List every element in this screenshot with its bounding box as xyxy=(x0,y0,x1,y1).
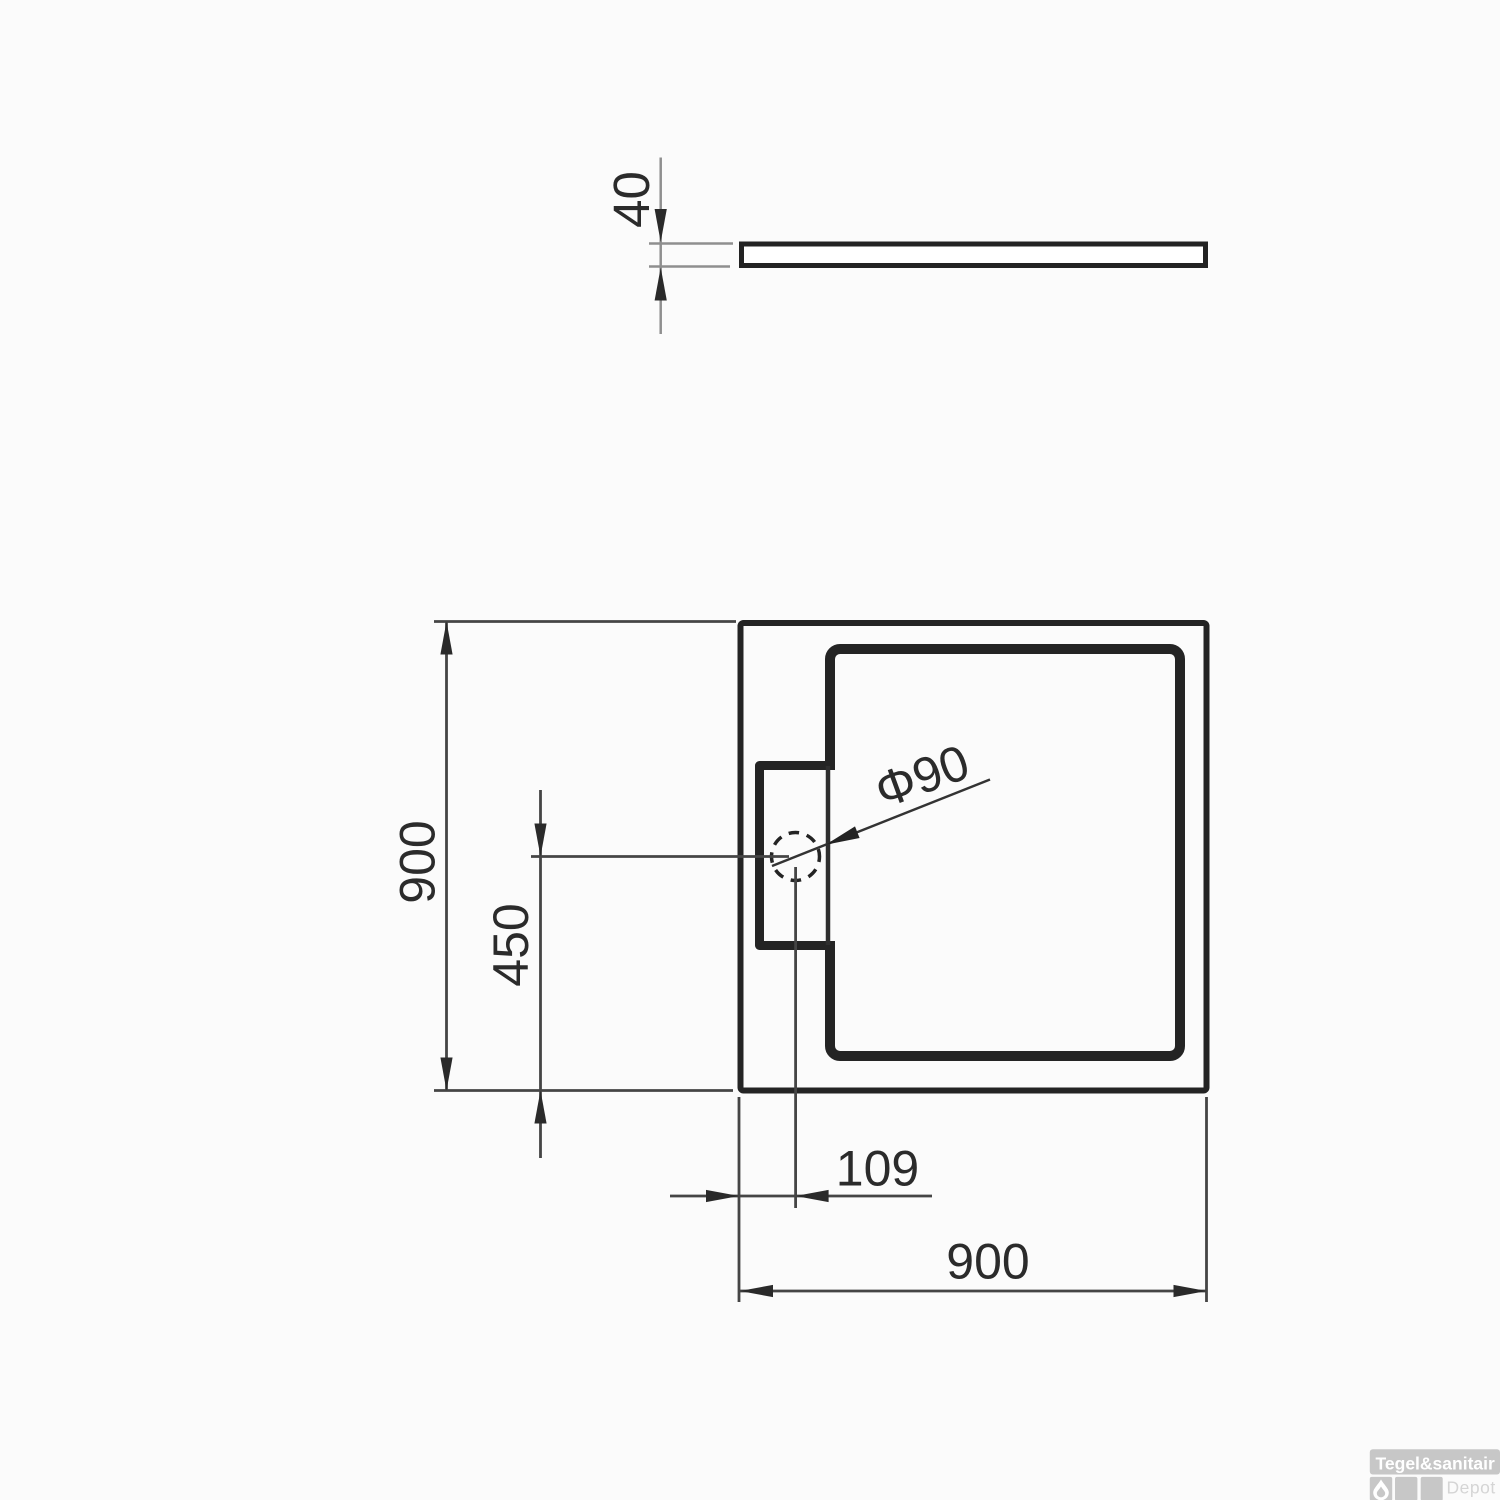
svg-text:Tegel&sanitair: Tegel&sanitair xyxy=(1376,1454,1495,1474)
svg-text:109: 109 xyxy=(836,1141,919,1197)
svg-text:900: 900 xyxy=(390,820,446,903)
svg-text:40: 40 xyxy=(603,171,660,228)
svg-text:450: 450 xyxy=(483,903,539,986)
svg-text:900: 900 xyxy=(946,1234,1029,1290)
svg-text:Depot: Depot xyxy=(1447,1478,1496,1498)
